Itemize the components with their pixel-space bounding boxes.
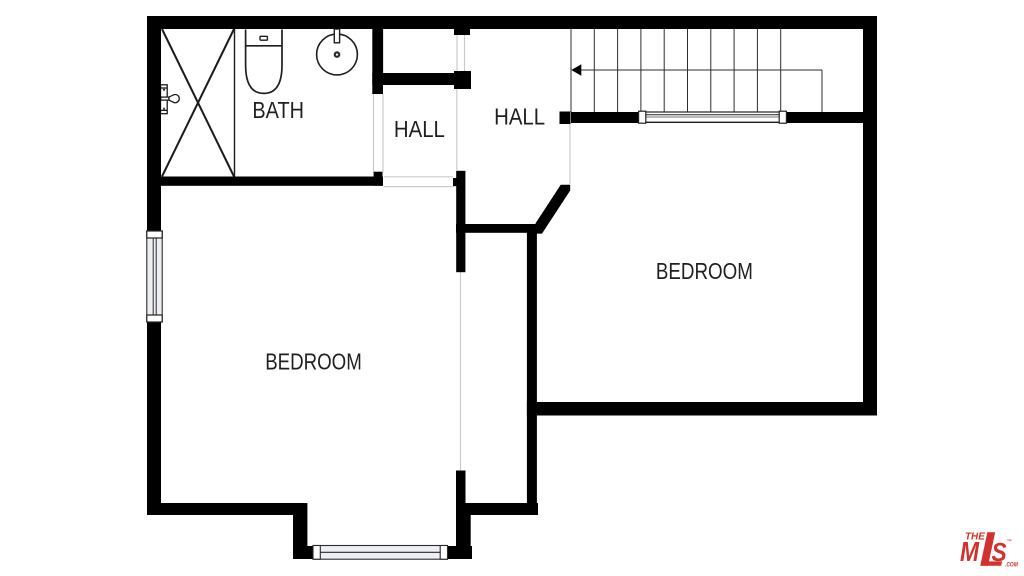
svg-text:BEDROOM: BEDROOM xyxy=(265,348,362,374)
svg-text:™: ™ xyxy=(1007,539,1012,545)
svg-text:HALL: HALL xyxy=(494,103,545,129)
svg-text:.COM: .COM xyxy=(1005,562,1018,569)
svg-text:BATH: BATH xyxy=(252,97,304,123)
svg-text:BEDROOM: BEDROOM xyxy=(656,258,753,284)
svg-text:M: M xyxy=(960,536,980,567)
svg-text:HALL: HALL xyxy=(394,116,445,142)
